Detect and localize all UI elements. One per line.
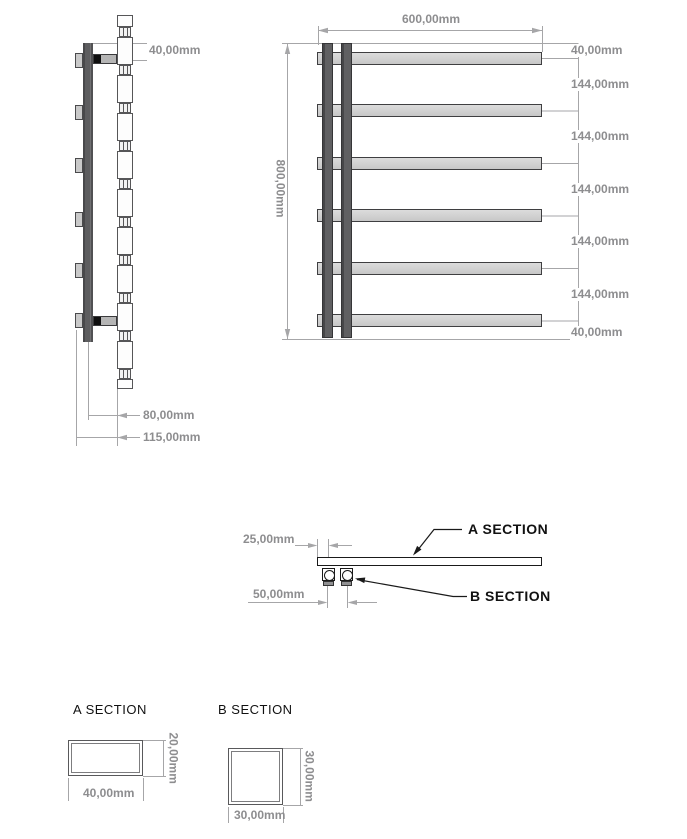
joint-line <box>123 332 124 340</box>
ladder-rail-segment <box>117 265 133 293</box>
bar-spacing-dim-label: 144,00mm <box>570 78 630 91</box>
joint-line <box>123 370 124 378</box>
tube-bore-circle <box>342 570 353 581</box>
bar-spacing-dim-label: 144,00mm <box>570 288 630 301</box>
bar-spacing-dim-label: 144,00mm <box>570 130 630 143</box>
joint-line <box>127 332 128 340</box>
detail-a-profile <box>68 740 143 776</box>
joint-line <box>123 104 124 112</box>
detail-a-width-label: 40,00mm <box>82 787 132 800</box>
ladder-joint-segment <box>119 255 131 265</box>
ladder-rail-segment <box>117 189 133 217</box>
detail-b-title: B SECTION <box>218 703 293 717</box>
ladder-joint-segment <box>119 141 131 151</box>
ladder-joint-segment <box>119 27 131 37</box>
joint-line <box>127 256 128 264</box>
joint-line <box>123 142 124 150</box>
wall-bracket-tab <box>75 53 83 68</box>
callout-a-section: A SECTION <box>468 522 548 537</box>
section-tube-a <box>322 568 335 581</box>
joint-line <box>123 28 124 36</box>
detail-b-profile <box>228 748 283 805</box>
ladder-joint-segment <box>119 369 131 379</box>
dim-label-side-depth: 80,00mm <box>142 409 195 422</box>
joint-line <box>123 256 124 264</box>
callout-b-section: B SECTION <box>470 589 551 604</box>
front-post-left <box>322 43 333 338</box>
ladder-joint-segment <box>119 331 131 341</box>
joint-line <box>123 180 124 188</box>
joint-line <box>127 180 128 188</box>
ladder-rail-segment <box>117 15 133 27</box>
detail-b-width-label: 30,00mm <box>233 809 283 822</box>
side-bottom-connector <box>93 316 117 326</box>
joint-line <box>127 218 128 226</box>
ladder-joint-segment <box>119 179 131 189</box>
ladder-rail-segment <box>117 227 133 255</box>
dim-label-width: 600,00mm <box>395 13 467 26</box>
ladder-rail-segment <box>117 113 133 141</box>
ladder-joint-segment <box>119 217 131 227</box>
detail-a-height-label: 20,00mm <box>167 732 180 784</box>
wall-bracket-tab <box>75 263 83 278</box>
dim-label-end-offset: 25,00mm <box>242 533 295 546</box>
ladder-joint-segment <box>119 65 131 75</box>
joint-line <box>127 294 128 302</box>
ladder-rail-segment <box>117 151 133 179</box>
dim-label-side-total-depth: 115,00mm <box>142 431 201 444</box>
wall-bracket-tab <box>75 105 83 120</box>
ladder-rail-segment <box>117 303 133 331</box>
bar-spacing-dim-label: 40,00mm <box>570 326 623 339</box>
dim-label-tube-spacing: 50,00mm <box>252 588 305 601</box>
ladder-joint-segment <box>119 103 131 113</box>
bar-spacing-dim-label: 144,00mm <box>570 183 630 196</box>
section-tube-a-foot <box>323 581 334 586</box>
dim-label-height: 800,00mm <box>274 158 287 220</box>
joint-line <box>123 218 124 226</box>
wall-bracket-tab <box>75 212 83 227</box>
tube-bore-circle <box>324 570 335 581</box>
joint-line <box>123 66 124 74</box>
detail-a-title: A SECTION <box>73 703 147 717</box>
ladder-joint-segment <box>119 293 131 303</box>
side-ladder <box>117 15 133 389</box>
joint-line <box>127 370 128 378</box>
ladder-rail-segment <box>117 75 133 103</box>
front-post-right <box>341 43 352 338</box>
bar-spacing-dim-label: 144,00mm <box>570 235 630 248</box>
detail-b-height-label: 30,00mm <box>303 750 316 802</box>
joint-line <box>127 28 128 36</box>
wall-bracket-tab <box>75 158 83 173</box>
bar-spacing-dim-label: 40,00mm <box>570 44 623 57</box>
joint-line <box>127 66 128 74</box>
technical-drawing-sheet: 40,00mm 80,00mm 115,00mm 600,00mm 800,00… <box>0 0 687 839</box>
side-top-connector <box>93 54 117 64</box>
ladder-rail-segment <box>117 379 133 389</box>
ladder-rail-segment <box>117 37 133 65</box>
wall-bracket-tab <box>75 313 83 328</box>
detail-a-inner-wall <box>71 743 140 773</box>
side-collector-post <box>83 43 93 342</box>
ladder-rail-segment <box>117 341 133 369</box>
section-tube-b-foot <box>341 581 352 586</box>
section-tube-b <box>340 568 353 581</box>
joint-line <box>127 104 128 112</box>
section-rail-top-view <box>317 557 542 566</box>
dim-label-side-top: 40,00mm <box>148 44 201 57</box>
joint-line <box>127 142 128 150</box>
detail-b-inner-wall <box>231 751 280 802</box>
joint-line <box>123 294 124 302</box>
